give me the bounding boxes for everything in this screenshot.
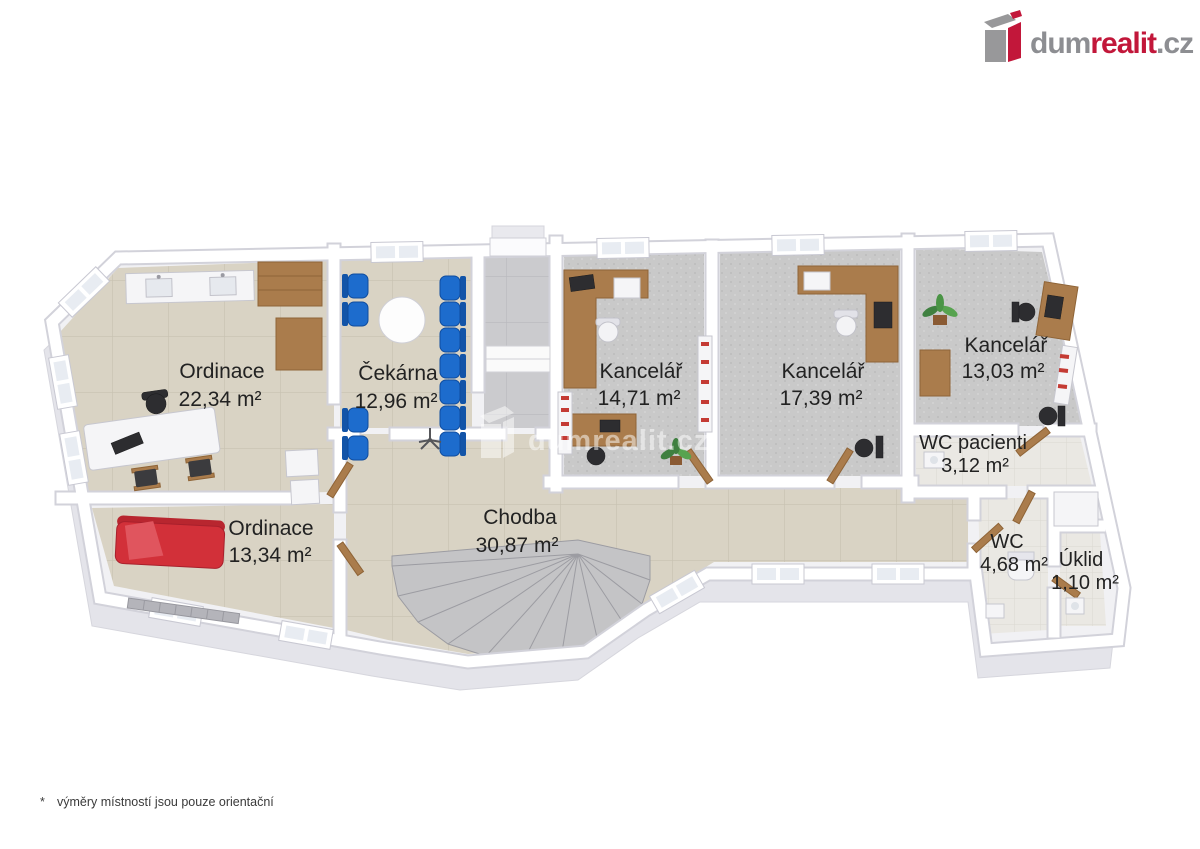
room-area-kancelar-2: 17,39 m² [780, 387, 863, 410]
office-chair [1017, 303, 1035, 321]
cabinet [276, 318, 322, 370]
washbasin-bowl [930, 456, 938, 464]
room-name-ordinace-2: Ordinace [228, 517, 313, 540]
cabinet [920, 350, 950, 396]
floor-entry-vestibule [484, 256, 550, 428]
entry-door [490, 238, 546, 256]
room-name-kancelar-2: Kancelář [782, 360, 866, 383]
logo-accent: realit [1090, 27, 1157, 60]
floorplan-page: Ordinace 22,34 m² Čekárna 12,96 m² Ordin… [0, 0, 1200, 849]
footnote-text: výměry místností jsou pouze orientační [57, 795, 274, 809]
logo: dumrealit.cz [984, 10, 1193, 62]
window [597, 238, 649, 259]
office-chair-back [876, 436, 883, 458]
logo-text: dumrealit.cz [1030, 27, 1193, 60]
sink-counter [126, 270, 255, 303]
room-area-uklid: 1,10 m² [1051, 572, 1119, 594]
room-name-cekarna: Čekárna [358, 362, 438, 385]
washbasin [986, 604, 1004, 618]
room-area-wc: 4,68 m² [980, 554, 1048, 576]
bookcase [258, 262, 322, 306]
footnote-marker: * [40, 795, 45, 809]
room-name-wc: WC [990, 531, 1023, 553]
room-area-cekarna: 12,96 m² [355, 390, 438, 413]
room-area-ordinace-1: 22,34 m² [179, 388, 262, 411]
window [872, 564, 924, 584]
desk-chair [598, 322, 618, 342]
window [965, 231, 1017, 252]
waiting-chair [440, 354, 466, 378]
printer [804, 272, 830, 290]
office-chair [855, 439, 873, 457]
room-area-kancelar-3: 13,03 m² [962, 360, 1045, 383]
logo-prefix: dum [1030, 27, 1090, 60]
room-name-wc-pacienti: WC pacienti [919, 432, 1027, 454]
room-name-kancelar-3: Kancelář [965, 334, 1049, 357]
printer [614, 278, 640, 298]
cabinet-white [290, 479, 319, 504]
visitor-chair [186, 455, 215, 480]
visitor-chair [132, 465, 161, 490]
window [371, 242, 423, 263]
floorplan-canvas: Ordinace 22,34 m² Čekárna 12,96 m² Ordin… [0, 0, 1200, 849]
footnote: *výměry místností jsou pouze orientační [40, 795, 274, 809]
room-area-wc-pacienti: 3,12 m² [941, 455, 1009, 477]
room-name-ordinace-1: Ordinace [179, 360, 264, 383]
waiting-chair [342, 274, 368, 298]
examination-couch [115, 515, 225, 569]
window [772, 235, 824, 256]
office-chair-back [1058, 406, 1065, 426]
room-area-kancelar-1: 14,71 m² [598, 387, 681, 410]
logo-suffix: .cz [1156, 27, 1193, 60]
waiting-chair [440, 406, 466, 430]
window [752, 564, 804, 584]
waiting-chair [342, 302, 368, 326]
room-name-kancelar-1: Kancelář [600, 360, 684, 383]
sink-bowl [1071, 602, 1079, 610]
monitor [874, 302, 892, 328]
cabinet-white [285, 449, 318, 477]
office-chair-back [1012, 302, 1019, 322]
office-chair [1039, 407, 1057, 425]
waiting-chair [440, 276, 466, 300]
dumrealit-box-icon [984, 10, 1022, 62]
waiting-chair [440, 302, 466, 326]
waiting-chair [440, 328, 466, 352]
room-area-chodba: 30,87 m² [476, 534, 559, 557]
room-name-chodba: Chodba [483, 506, 557, 529]
room-area-ordinace-2: 13,34 m² [229, 544, 312, 567]
watermark-text: dumrealit.cz [528, 425, 709, 457]
wall-chunk [1054, 492, 1098, 526]
round-table [379, 297, 425, 343]
waiting-chair [342, 436, 368, 460]
waiting-chair [440, 380, 466, 404]
desk-chair [836, 316, 856, 336]
monitor [569, 274, 595, 291]
waiting-chair [440, 432, 466, 456]
room-name-uklid: Úklid [1059, 548, 1103, 571]
monitor [1044, 295, 1063, 319]
